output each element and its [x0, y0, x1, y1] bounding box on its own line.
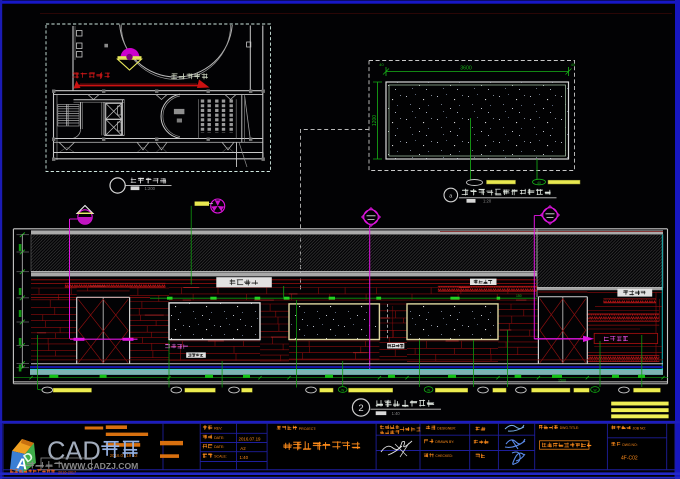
svg-text:3600: 3600 [460, 66, 472, 72]
svg-text:PROJECT:: PROJECT: [299, 427, 317, 431]
svg-text:A2: A2 [240, 446, 246, 451]
svg-text:2016-2017: 2016-2017 [58, 470, 76, 474]
svg-text:2016.07.19: 2016.07.19 [239, 437, 262, 442]
svg-text:DATE:: DATE: [214, 445, 224, 449]
svg-text:SCALE:: SCALE: [214, 455, 227, 459]
svg-text:40: 40 [379, 62, 384, 67]
svg-text:DWG NO:: DWG NO: [622, 443, 637, 447]
svg-text:40: 40 [571, 62, 576, 67]
svg-text:DATE:: DATE: [214, 436, 224, 440]
svg-text:1:40: 1:40 [392, 411, 401, 416]
svg-text:40: 40 [537, 181, 541, 185]
svg-text:DESIGNER:: DESIGNER: [437, 427, 456, 431]
svg-text:1:200: 1:200 [145, 186, 156, 191]
svg-text:W: W [341, 388, 344, 392]
svg-text:1:40: 1:40 [240, 455, 249, 460]
svg-text:1:20: 1:20 [483, 199, 492, 204]
svg-text:2: 2 [358, 403, 363, 414]
svg-text:DRAWN BY:: DRAWN BY: [435, 440, 454, 444]
svg-text:4F-C02: 4F-C02 [621, 455, 638, 461]
svg-text:REV:: REV: [214, 427, 222, 431]
svg-text:CHECKED:: CHECKED: [435, 454, 453, 458]
svg-text:W: W [427, 388, 430, 392]
svg-text:150: 150 [516, 294, 522, 298]
svg-text:W: W [593, 388, 596, 392]
svg-text:1200: 1200 [372, 115, 378, 126]
svg-text:DWG.TITLE:: DWG.TITLE: [560, 426, 579, 430]
svg-text:JOB NO:: JOB NO: [632, 426, 646, 430]
